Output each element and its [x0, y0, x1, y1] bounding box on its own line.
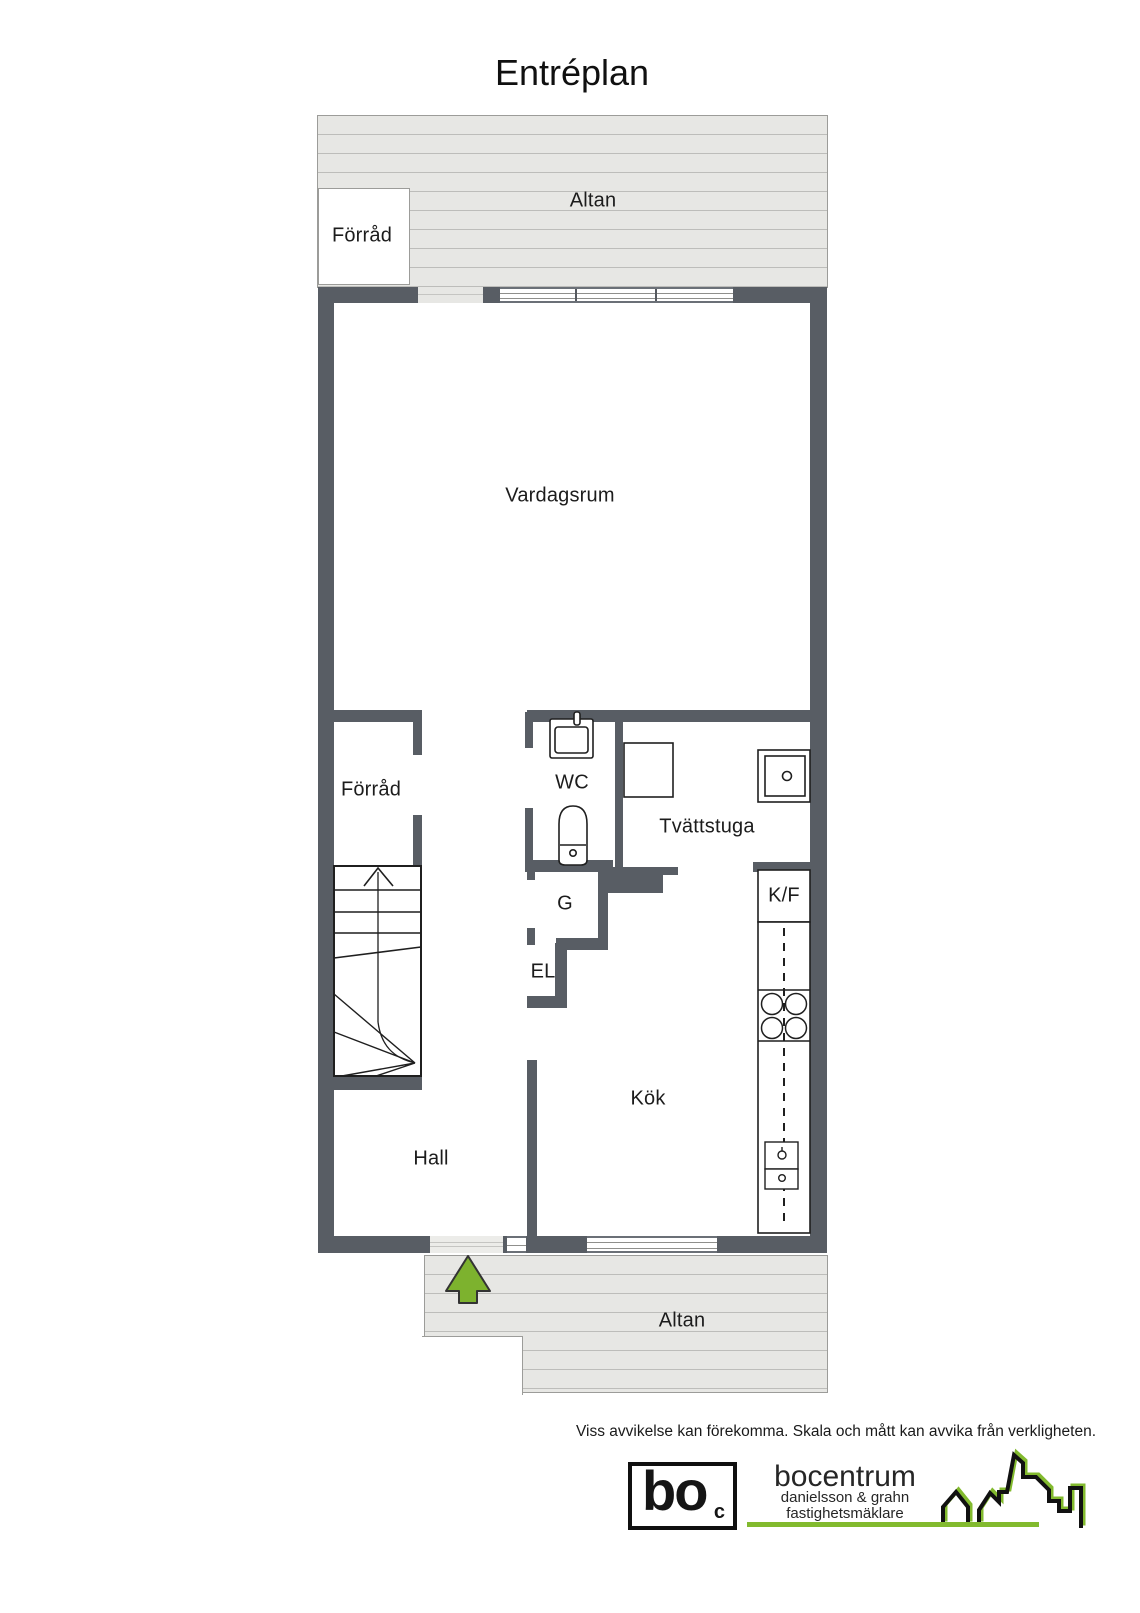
- wall: [525, 712, 533, 748]
- room-label-laundry: Tvättstuga: [659, 816, 754, 839]
- room-label-wardrobe: G: [557, 893, 573, 916]
- logo-underline: [747, 1522, 1039, 1527]
- terrace-door-opening: [418, 287, 483, 303]
- wall: [753, 862, 810, 872]
- wall: [663, 867, 678, 875]
- wall: [318, 1236, 430, 1253]
- page-title: Entréplan: [495, 52, 649, 94]
- room-label-fridge-freezer: K/F: [768, 885, 800, 908]
- entrance-door-threshold: [430, 1236, 503, 1253]
- wall: [717, 1236, 827, 1253]
- wall: [483, 287, 500, 303]
- wall: [318, 710, 422, 722]
- wall: [525, 808, 533, 864]
- wall: [555, 943, 567, 998]
- room-label-storage-outdoor: Förråd: [332, 225, 392, 248]
- stove-icon: [762, 994, 807, 1039]
- logo-mark-sub: c: [714, 1501, 725, 1524]
- window: [587, 1236, 717, 1253]
- room-label-hall: Hall: [413, 1148, 448, 1171]
- room-label-electrical: EL: [531, 961, 556, 984]
- wall: [318, 287, 334, 1253]
- wall: [318, 1077, 422, 1090]
- kitchen-counter: [758, 870, 810, 1233]
- logo-box: bo c: [628, 1462, 737, 1530]
- wall: [527, 867, 535, 880]
- kitchen-sink-icon: [765, 1142, 798, 1189]
- wall: [413, 710, 422, 755]
- wall: [598, 867, 663, 893]
- wall: [615, 712, 623, 867]
- logo-tagline1: danielsson & grahn: [781, 1489, 909, 1506]
- room-label-altan-bottom: Altan: [659, 1310, 706, 1333]
- staircase: [334, 866, 421, 1076]
- wall: [810, 287, 827, 1253]
- wall: [527, 996, 567, 1008]
- room-label-living-room: Vardagsrum: [505, 485, 614, 508]
- disclaimer-text: Viss avvikelse kan förekomma. Skala och …: [576, 1423, 1096, 1441]
- wall: [527, 1060, 537, 1253]
- wall: [413, 815, 422, 865]
- floorplan-page: Entréplan: [0, 0, 1140, 1613]
- wall: [318, 287, 418, 303]
- terrace-notch: [422, 1336, 523, 1395]
- room-label-storage: Förråd: [341, 779, 401, 802]
- wall: [527, 710, 810, 722]
- room-label-altan-top: Altan: [570, 190, 617, 213]
- room-label-wc: WC: [555, 772, 589, 795]
- dryer-icon: [758, 750, 810, 802]
- logo-mark: bo: [642, 1458, 706, 1523]
- window: [507, 1236, 526, 1253]
- logo-skyline-icon: [903, 1453, 1084, 1529]
- washing-machine-icon: [624, 743, 673, 797]
- room-label-kitchen: Kök: [630, 1088, 665, 1111]
- wall: [733, 287, 827, 303]
- logo-tagline2: fastighetsmäklare: [786, 1505, 904, 1522]
- wall: [527, 928, 535, 945]
- toilet-icon: [559, 806, 587, 865]
- window: [500, 287, 733, 303]
